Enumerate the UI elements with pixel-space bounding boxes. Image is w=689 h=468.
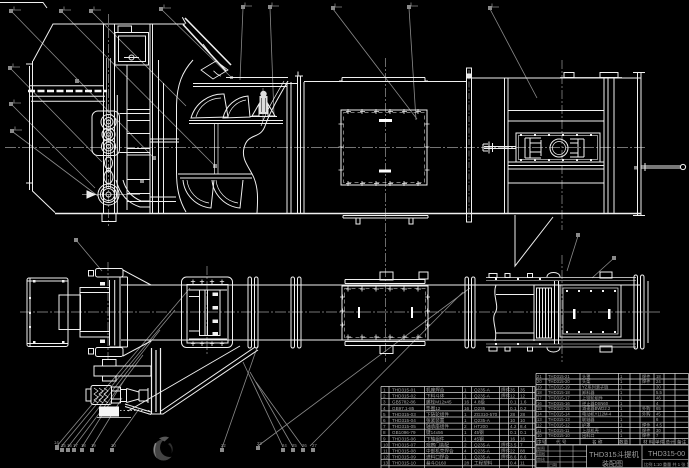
svg-text:88: 88 bbox=[520, 449, 526, 454]
svg-text:16: 16 bbox=[520, 436, 526, 441]
svg-text:THD315-15: THD315-15 bbox=[548, 406, 570, 411]
svg-text:14: 14 bbox=[54, 440, 59, 445]
svg-text:THD315-02: THD315-02 bbox=[392, 394, 416, 399]
svg-text:26: 26 bbox=[302, 443, 307, 448]
svg-text:观察门装配: 观察门装配 bbox=[426, 441, 449, 448]
svg-text:45: 45 bbox=[656, 412, 661, 417]
svg-text:4.8级: 4.8级 bbox=[474, 399, 485, 406]
svg-text:1: 1 bbox=[464, 455, 467, 460]
svg-text:外购: 外购 bbox=[642, 411, 650, 418]
svg-text:0.1: 0.1 bbox=[510, 406, 517, 411]
svg-text:0.2: 0.2 bbox=[520, 406, 527, 411]
svg-text:3: 3 bbox=[383, 400, 386, 405]
svg-text:10: 10 bbox=[510, 418, 516, 423]
svg-text:THD315-16: THD315-16 bbox=[548, 401, 570, 406]
svg-text:19: 19 bbox=[91, 443, 96, 448]
svg-text:THD315-05: THD315-05 bbox=[392, 424, 416, 429]
svg-text:18: 18 bbox=[537, 390, 542, 395]
svg-text:13: 13 bbox=[383, 461, 389, 466]
svg-text:16: 16 bbox=[464, 400, 470, 405]
svg-text:HT200: HT200 bbox=[474, 424, 488, 429]
svg-text:23: 23 bbox=[257, 441, 262, 446]
svg-text:1: 1 bbox=[464, 418, 467, 423]
svg-text:0.1: 0.1 bbox=[520, 430, 527, 435]
svg-text:出料口: 出料口 bbox=[582, 432, 595, 439]
svg-text:THD315-17: THD315-17 bbox=[548, 395, 570, 400]
svg-text:3.5: 3.5 bbox=[510, 442, 517, 447]
svg-text:THD315-04: THD315-04 bbox=[392, 418, 416, 423]
svg-text:1: 1 bbox=[464, 412, 467, 417]
svg-text:6: 6 bbox=[383, 418, 386, 423]
svg-text:THD315-06: THD315-06 bbox=[392, 436, 416, 441]
svg-text:下轴组件: 下轴组件 bbox=[426, 435, 445, 442]
svg-text:GB5782-86: GB5782-86 bbox=[392, 400, 416, 405]
svg-text:THD315-11: THD315-11 bbox=[548, 428, 570, 433]
svg-text:5.5: 5.5 bbox=[656, 390, 662, 395]
svg-text:GB97.1-85: GB97.1-85 bbox=[392, 406, 415, 411]
svg-text:15: 15 bbox=[537, 406, 542, 411]
svg-text:17: 17 bbox=[73, 443, 78, 448]
svg-text:畚斗D160: 畚斗D160 bbox=[426, 460, 447, 467]
svg-text:16: 16 bbox=[537, 401, 542, 406]
svg-text:9: 9 bbox=[383, 436, 386, 441]
svg-text:1: 1 bbox=[464, 430, 467, 435]
svg-text:日期: 日期 bbox=[549, 462, 557, 468]
svg-text:4.5: 4.5 bbox=[656, 422, 662, 427]
svg-text:2: 2 bbox=[464, 424, 467, 429]
svg-text:16: 16 bbox=[67, 443, 72, 448]
svg-text:Q235-A: Q235-A bbox=[474, 388, 491, 393]
svg-text:16: 16 bbox=[464, 406, 470, 411]
svg-text:24: 24 bbox=[282, 443, 287, 448]
svg-text:代 号: 代 号 bbox=[556, 439, 567, 446]
svg-text:20: 20 bbox=[537, 379, 542, 384]
svg-text:35: 35 bbox=[510, 388, 516, 393]
svg-text:比例 1:10 重量 共 1 张 第 1 张: 比例 1:10 重量 共 1 张 第 1 张 bbox=[644, 461, 689, 468]
svg-text:45钢: 45钢 bbox=[474, 435, 484, 442]
svg-text:轴承座组件: 轴承座组件 bbox=[426, 423, 449, 430]
svg-text:25: 25 bbox=[292, 443, 297, 448]
svg-text:名 称: 名 称 bbox=[592, 439, 603, 446]
svg-text:27: 27 bbox=[312, 443, 317, 448]
svg-text:4.2: 4.2 bbox=[510, 424, 517, 429]
svg-text:8.6: 8.6 bbox=[520, 455, 527, 460]
svg-text:17: 17 bbox=[537, 395, 542, 400]
svg-text:GB1096-79: GB1096-79 bbox=[392, 430, 416, 435]
svg-text:焊件: 焊件 bbox=[642, 432, 650, 439]
svg-text:Q235-A: Q235-A bbox=[474, 418, 491, 423]
svg-text:THD315-10: THD315-10 bbox=[548, 433, 570, 438]
svg-text:1: 1 bbox=[464, 394, 467, 399]
svg-text:Q235: Q235 bbox=[474, 406, 486, 411]
svg-text:键14x56: 键14x56 bbox=[426, 429, 444, 436]
svg-text:18: 18 bbox=[656, 374, 661, 379]
svg-text:4: 4 bbox=[383, 406, 386, 411]
svg-text:THD315-09: THD315-09 bbox=[392, 455, 416, 460]
svg-text:12: 12 bbox=[510, 394, 516, 399]
svg-text:进料口焊合: 进料口焊合 bbox=[426, 454, 449, 461]
svg-text:THD315-13: THD315-13 bbox=[548, 417, 570, 422]
svg-text:12: 12 bbox=[537, 422, 542, 427]
svg-text:THD315-14: THD315-14 bbox=[548, 412, 570, 417]
svg-text:工程塑料: 工程塑料 bbox=[474, 460, 493, 467]
svg-text:THD315斗提机: THD315斗提机 bbox=[589, 449, 639, 459]
svg-text:中部机壳焊合: 中部机壳焊合 bbox=[426, 448, 454, 455]
svg-text:8.6: 8.6 bbox=[510, 455, 517, 460]
svg-text:THD315-10: THD315-10 bbox=[392, 461, 416, 466]
svg-text:21: 21 bbox=[537, 374, 542, 379]
svg-text:THD315-18: THD315-18 bbox=[548, 390, 570, 395]
svg-text:机座焊合: 机座焊合 bbox=[426, 387, 445, 394]
svg-text:22: 22 bbox=[221, 443, 226, 448]
svg-text:19: 19 bbox=[537, 385, 542, 390]
svg-text:垫圈12: 垫圈12 bbox=[426, 405, 441, 412]
svg-text:11: 11 bbox=[537, 428, 542, 433]
svg-text:8: 8 bbox=[383, 430, 386, 435]
svg-text:装配图: 装配图 bbox=[602, 459, 623, 468]
svg-text:螺栓M12x45: 螺栓M12x45 bbox=[426, 399, 452, 406]
svg-text:Q235-A: Q235-A bbox=[474, 449, 491, 454]
svg-text:12: 12 bbox=[520, 394, 526, 399]
svg-text:1.6: 1.6 bbox=[520, 400, 527, 405]
svg-text:13: 13 bbox=[537, 417, 542, 422]
svg-text:张紧装置: 张紧装置 bbox=[426, 417, 445, 424]
svg-text:审核: 审核 bbox=[537, 456, 545, 462]
svg-text:THD315-21: THD315-21 bbox=[548, 374, 570, 379]
svg-text:数量: 数量 bbox=[619, 439, 629, 446]
svg-text:材 料: 材 料 bbox=[643, 439, 654, 446]
svg-text:15: 15 bbox=[61, 443, 66, 448]
svg-text:单件 总计: 单件 总计 bbox=[655, 439, 675, 446]
svg-text:10: 10 bbox=[520, 418, 526, 423]
svg-text:10: 10 bbox=[383, 442, 389, 447]
svg-text:下料斗体: 下料斗体 bbox=[426, 393, 445, 400]
svg-text:16: 16 bbox=[510, 436, 516, 441]
svg-text:0.4: 0.4 bbox=[510, 461, 517, 466]
svg-text:14: 14 bbox=[537, 412, 542, 417]
svg-text:24: 24 bbox=[656, 379, 661, 384]
svg-text:11: 11 bbox=[520, 461, 525, 466]
svg-text:45钢: 45钢 bbox=[474, 429, 484, 436]
svg-text:0.1: 0.1 bbox=[510, 430, 517, 435]
svg-text:4: 4 bbox=[464, 449, 467, 454]
svg-text:35: 35 bbox=[520, 388, 526, 393]
svg-text:12: 12 bbox=[383, 455, 389, 460]
svg-text:1: 1 bbox=[383, 388, 386, 393]
svg-text:Q235-A: Q235-A bbox=[474, 455, 491, 460]
svg-text:THD315-08: THD315-08 bbox=[392, 449, 416, 454]
svg-text:Q235-A: Q235-A bbox=[474, 442, 491, 447]
svg-text:65: 65 bbox=[656, 406, 661, 411]
svg-text:THD315-00: THD315-00 bbox=[648, 449, 685, 458]
svg-text:THD315-12: THD315-12 bbox=[548, 422, 570, 427]
svg-text:8.4: 8.4 bbox=[520, 424, 527, 429]
svg-text:46: 46 bbox=[656, 395, 661, 400]
svg-text:描图: 描图 bbox=[537, 451, 545, 457]
svg-text:28: 28 bbox=[520, 412, 526, 417]
svg-text:THD315-20: THD315-20 bbox=[548, 379, 570, 384]
svg-text:1: 1 bbox=[464, 388, 467, 393]
svg-text:THD315-03: THD315-03 bbox=[392, 412, 416, 417]
svg-text:下链轮组件: 下链轮组件 bbox=[426, 411, 449, 418]
svg-text:Q235-A: Q235-A bbox=[474, 394, 491, 399]
svg-text:30: 30 bbox=[656, 385, 661, 390]
svg-text:1: 1 bbox=[464, 436, 467, 441]
svg-text:ZG310-570: ZG310-570 bbox=[474, 412, 498, 417]
svg-text:10: 10 bbox=[537, 433, 542, 438]
svg-text:11: 11 bbox=[383, 449, 388, 454]
svg-text:7: 7 bbox=[520, 442, 523, 447]
svg-text:28: 28 bbox=[464, 461, 470, 466]
svg-text:2: 2 bbox=[464, 442, 467, 447]
svg-text:备注: 备注 bbox=[677, 439, 687, 446]
svg-text:30: 30 bbox=[656, 428, 661, 433]
svg-text:7: 7 bbox=[383, 424, 386, 429]
svg-text:20: 20 bbox=[111, 443, 116, 448]
svg-text:THD315-01: THD315-01 bbox=[392, 388, 416, 393]
svg-text:THD315-07: THD315-07 bbox=[392, 442, 416, 447]
svg-text:制图: 制图 bbox=[537, 445, 545, 451]
svg-text:22: 22 bbox=[510, 449, 516, 454]
svg-text:序号: 序号 bbox=[537, 439, 547, 446]
svg-text:焊件: 焊件 bbox=[642, 378, 650, 385]
svg-text:2: 2 bbox=[383, 394, 386, 399]
svg-text:5: 5 bbox=[383, 412, 386, 417]
svg-text:18: 18 bbox=[81, 443, 86, 448]
svg-text:0.1: 0.1 bbox=[510, 400, 517, 405]
svg-text:28: 28 bbox=[510, 412, 516, 417]
svg-text:THD315-19: THD315-19 bbox=[548, 385, 570, 390]
